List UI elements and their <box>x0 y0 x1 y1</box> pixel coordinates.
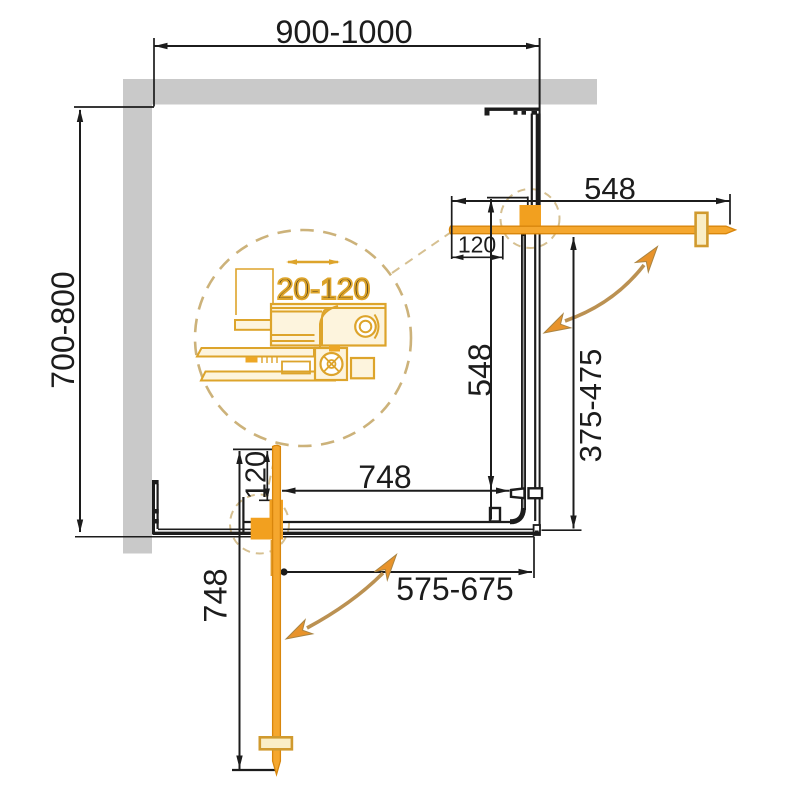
svg-text:120: 120 <box>241 451 273 499</box>
svg-text:20-120: 20-120 <box>277 273 370 306</box>
svg-text:575-675: 575-675 <box>396 571 513 607</box>
svg-text:548: 548 <box>462 343 498 396</box>
svg-text:748: 748 <box>198 568 234 622</box>
svg-text:700-800: 700-800 <box>45 271 81 388</box>
svg-text:375-475: 375-475 <box>573 349 608 463</box>
svg-text:748: 748 <box>358 459 411 495</box>
svg-text:548: 548 <box>584 171 636 206</box>
svg-text:900-1000: 900-1000 <box>275 14 412 50</box>
